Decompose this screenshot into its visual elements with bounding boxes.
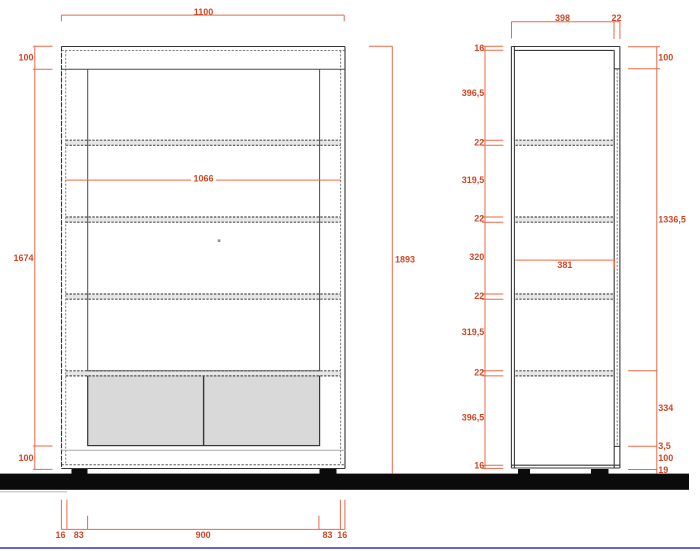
svg-text:398: 398 [555, 13, 570, 23]
svg-text:83: 83 [322, 530, 332, 540]
svg-text:1066: 1066 [193, 173, 213, 183]
svg-text:900: 900 [196, 530, 211, 540]
svg-text:22: 22 [474, 213, 484, 223]
svg-text:334: 334 [658, 403, 673, 413]
svg-text:100: 100 [658, 453, 673, 463]
svg-text:83: 83 [74, 530, 84, 540]
svg-text:22: 22 [474, 291, 484, 301]
svg-text:319,5: 319,5 [462, 175, 485, 185]
svg-text:22: 22 [611, 13, 621, 23]
svg-text:1100: 1100 [194, 7, 214, 17]
svg-text:320: 320 [469, 252, 484, 262]
svg-text:16: 16 [55, 530, 65, 540]
svg-text:1336,5: 1336,5 [658, 215, 686, 225]
svg-text:100: 100 [18, 453, 33, 463]
svg-text:100: 100 [658, 53, 673, 63]
svg-text:16: 16 [337, 530, 347, 540]
svg-text:3,5: 3,5 [658, 441, 671, 451]
svg-text:19: 19 [658, 465, 668, 475]
svg-text:381: 381 [557, 260, 572, 270]
svg-text:22: 22 [474, 368, 484, 378]
svg-text:16: 16 [474, 461, 484, 471]
svg-text:1674: 1674 [13, 253, 33, 263]
svg-text:16: 16 [474, 43, 484, 53]
svg-text:22: 22 [474, 138, 484, 148]
svg-text:396,5: 396,5 [462, 413, 485, 423]
svg-text:100: 100 [18, 53, 33, 63]
svg-text:319,5: 319,5 [462, 327, 485, 337]
svg-text:396,5: 396,5 [462, 88, 485, 98]
svg-text:1893: 1893 [395, 255, 415, 265]
